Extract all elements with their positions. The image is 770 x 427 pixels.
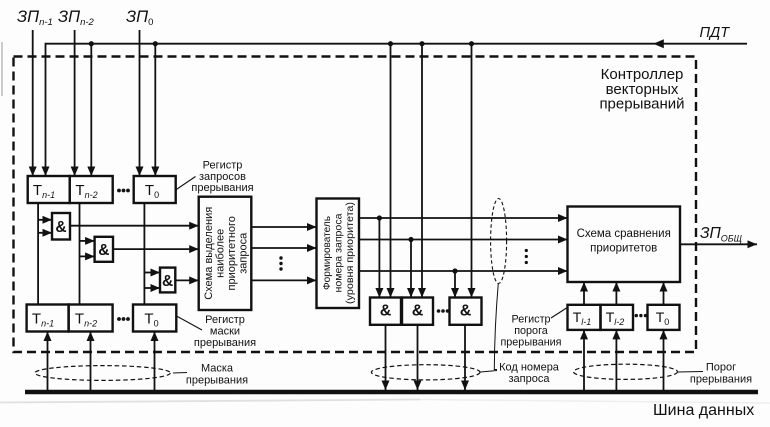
svg-text:Регистр: Регистр — [511, 314, 550, 326]
svg-text:Порог: Порог — [706, 362, 736, 374]
svg-text:приоритетов: приоритетов — [590, 243, 657, 255]
svg-text:Тn-2: Тn-2 — [75, 182, 97, 200]
svg-text:ЗПn-1: ЗПn-1 — [17, 8, 53, 28]
svg-text:прерывания: прерывания — [186, 375, 248, 387]
svg-text:запроса: запроса — [237, 232, 249, 274]
svg-text:прерывания: прерывания — [191, 182, 253, 194]
svg-text:Т0: Т0 — [145, 182, 159, 200]
svg-text:Код номера: Код номера — [499, 362, 560, 374]
svg-text:запросов: запросов — [199, 171, 246, 183]
svg-text:ПДТ: ПДТ — [700, 25, 731, 41]
svg-text:&: & — [460, 303, 472, 320]
svg-text:запроса: запроса — [509, 373, 551, 385]
svg-text:приоритетного: приоритетного — [226, 216, 238, 290]
svg-text:наиболее: наиболее — [215, 229, 227, 278]
svg-text:Схема сравнения: Схема сравнения — [577, 228, 671, 240]
svg-text:Тn-2: Тn-2 — [75, 311, 97, 329]
svg-text:Маска: Маска — [201, 363, 234, 375]
svg-text:маски: маски — [210, 326, 240, 338]
svg-text:Тl-1: Тl-1 — [573, 309, 592, 327]
svg-text:&: & — [380, 303, 392, 320]
svg-text:прерываний: прерываний — [599, 96, 684, 113]
svg-text:Тl-2: Тl-2 — [606, 309, 625, 327]
svg-text:&: & — [98, 242, 109, 259]
svg-text:Тn-1: Тn-1 — [32, 311, 54, 329]
svg-text:Регистр: Регистр — [203, 160, 243, 172]
svg-text:&: & — [162, 273, 173, 290]
svg-text:&: & — [55, 219, 66, 236]
svg-text:Тn-1: Тn-1 — [33, 182, 55, 200]
svg-text:прерывания: прерывания — [500, 337, 561, 349]
svg-text:&: & — [412, 303, 424, 320]
svg-text:Регистр: Регистр — [205, 314, 245, 326]
svg-text:Шина данных: Шина данных — [653, 402, 754, 419]
svg-text:ЗП0: ЗП0 — [126, 8, 153, 28]
svg-text:ЗПОБЩ: ЗПОБЩ — [700, 225, 743, 244]
svg-text:Формирователь: Формирователь — [322, 216, 333, 290]
svg-text:(уровня приоритета): (уровня приоритета) — [345, 202, 356, 304]
svg-text:порога: порога — [514, 325, 548, 337]
svg-text:Т0: Т0 — [656, 309, 670, 327]
svg-text:прерывания: прерывания — [690, 374, 752, 386]
svg-text:Схема выделения: Схема выделения — [203, 207, 215, 300]
svg-text:номера запроса: номера запроса — [334, 213, 345, 292]
svg-text:ЗПn-2: ЗПn-2 — [58, 8, 95, 28]
svg-text:Т0: Т0 — [144, 311, 158, 329]
svg-text:прерывания: прерывания — [194, 337, 256, 349]
